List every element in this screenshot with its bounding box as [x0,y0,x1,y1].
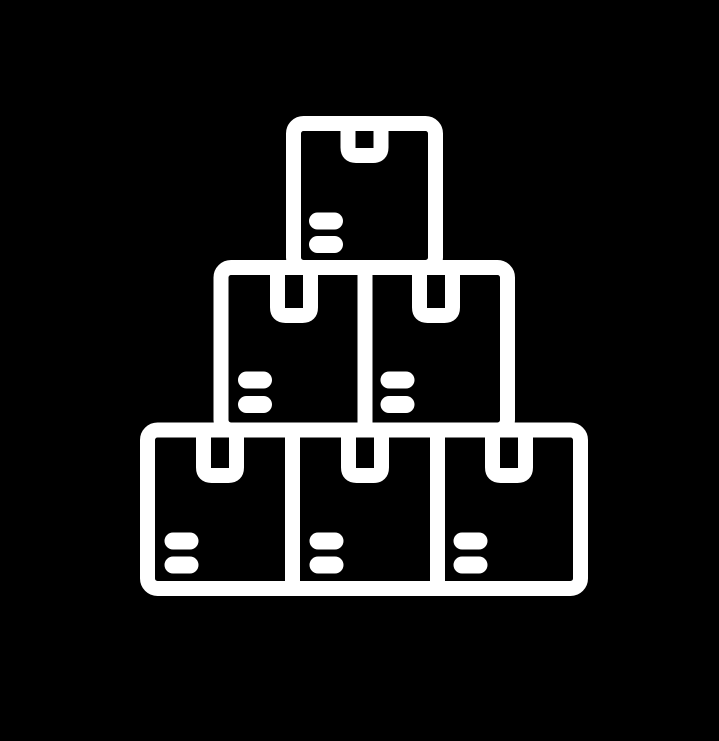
stacked-boxes-icon [0,0,719,741]
label-lines [318,221,335,245]
box-row-bottom [148,430,581,589]
box-row-middle [221,268,508,431]
icon-canvas [0,0,719,741]
box-row-top [294,124,436,268]
boxes-stroke-group [148,124,581,589]
label-lines [247,380,407,405]
box-row-outline [148,430,581,589]
screen [0,0,719,741]
